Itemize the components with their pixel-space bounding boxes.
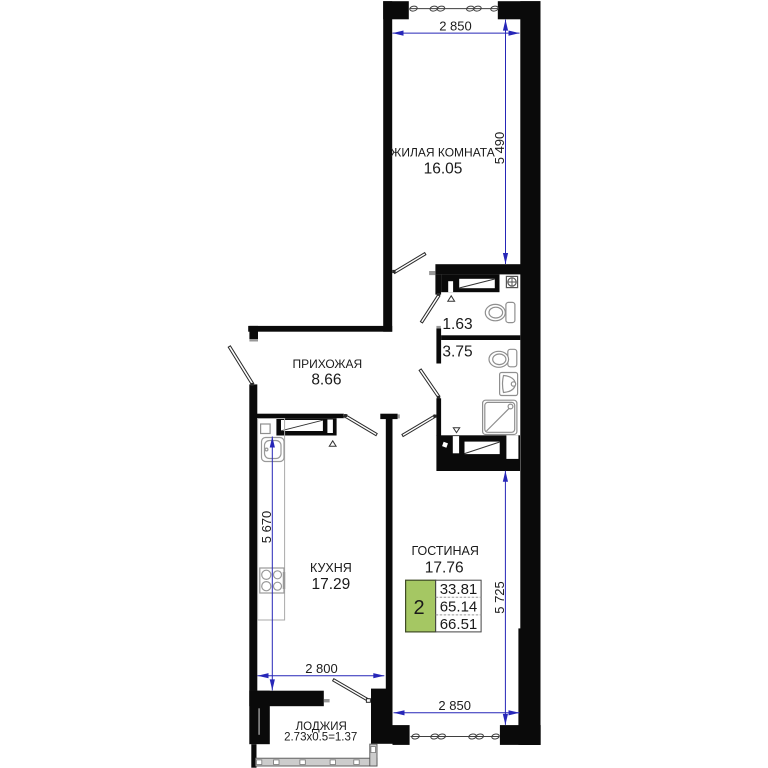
svg-text:ЖИЛАЯ КОМНАТА: ЖИЛАЯ КОМНАТА <box>390 145 494 159</box>
svg-text:33.81: 33.81 <box>440 581 478 598</box>
svg-text:2 850: 2 850 <box>438 698 471 713</box>
svg-text:КУХНЯ: КУХНЯ <box>310 561 352 575</box>
svg-text:3.75: 3.75 <box>442 343 472 360</box>
svg-text:ГОСТИНАЯ: ГОСТИНАЯ <box>411 544 478 558</box>
svg-text:2 800: 2 800 <box>305 661 338 676</box>
svg-text:17.76: 17.76 <box>425 559 464 576</box>
svg-text:2.73х0.5=1.37: 2.73х0.5=1.37 <box>284 732 357 744</box>
svg-text:2 850: 2 850 <box>439 18 472 33</box>
svg-text:16.05: 16.05 <box>424 161 463 178</box>
svg-text:65.14: 65.14 <box>440 599 478 616</box>
svg-text:ПРИХОЖАЯ: ПРИХОЖАЯ <box>292 357 362 371</box>
svg-text:66.51: 66.51 <box>440 616 478 633</box>
svg-text:1.63: 1.63 <box>442 316 472 333</box>
svg-text:17.29: 17.29 <box>312 576 351 593</box>
svg-text:2: 2 <box>413 597 424 619</box>
svg-text:8.66: 8.66 <box>311 372 341 389</box>
svg-text:5 670: 5 670 <box>259 511 274 544</box>
svg-text:5 725: 5 725 <box>492 581 507 614</box>
